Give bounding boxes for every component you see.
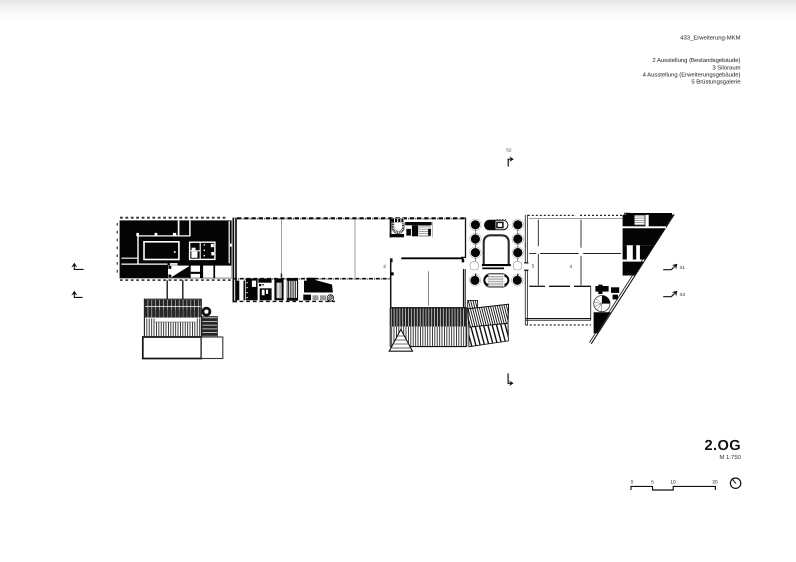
svg-text:3 Siloraum: 3 Siloraum xyxy=(712,64,740,71)
svg-text:10: 10 xyxy=(670,480,676,486)
svg-text:433_Erweiterung-MKM: 433_Erweiterung-MKM xyxy=(680,34,740,41)
svg-text:S1: S1 xyxy=(680,265,686,270)
svg-text:S2: S2 xyxy=(506,148,512,153)
svg-text:4 Ausstellung (Erweiterungsgeb: 4 Ausstellung (Erweiterungsgebäude) xyxy=(643,72,741,79)
svg-text:20: 20 xyxy=(712,480,718,486)
svg-text:5: 5 xyxy=(532,263,535,268)
svg-text:5 Brüstungsgalerie: 5 Brüstungsgalerie xyxy=(691,79,741,86)
svg-text:5: 5 xyxy=(651,480,654,486)
svg-text:M 1:750: M 1:750 xyxy=(719,454,741,461)
svg-text:0: 0 xyxy=(631,480,634,486)
svg-text:S3: S3 xyxy=(680,292,686,297)
svg-text:2.OG: 2.OG xyxy=(705,438,741,454)
svg-text:2 Ausstellung (Bestandsgebäude: 2 Ausstellung (Bestandsgebäude) xyxy=(652,57,740,64)
svg-text:4: 4 xyxy=(570,264,573,269)
svg-text:2: 2 xyxy=(383,264,386,269)
